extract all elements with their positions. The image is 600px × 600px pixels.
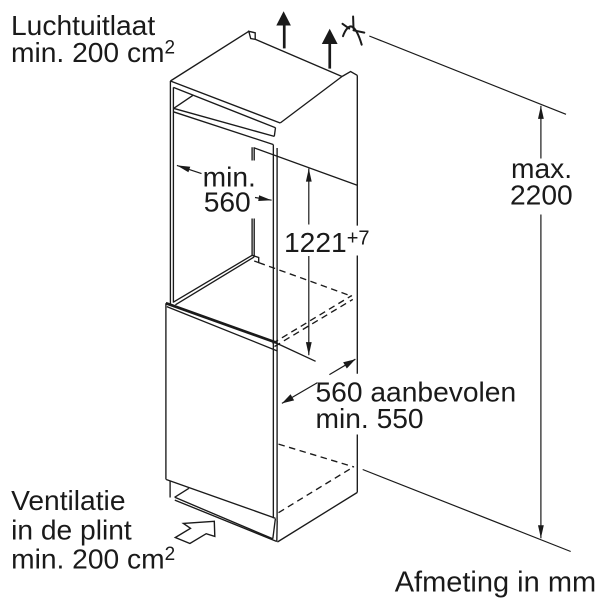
svg-text:Ventilatie: Ventilatie [11, 484, 125, 516]
svg-text:2200: 2200 [510, 179, 573, 211]
svg-text:min. 550: min. 550 [316, 402, 424, 434]
svg-text:Afmeting in mm: Afmeting in mm [395, 566, 596, 598]
svg-text:in de plint: in de plint [11, 514, 132, 546]
svg-text:min. 200 cm2: min. 200 cm2 [11, 543, 175, 575]
svg-text:560: 560 [204, 185, 251, 217]
svg-text:min. 200 cm2: min. 200 cm2 [11, 36, 175, 68]
svg-text:1221+7: 1221+7 [284, 226, 370, 258]
